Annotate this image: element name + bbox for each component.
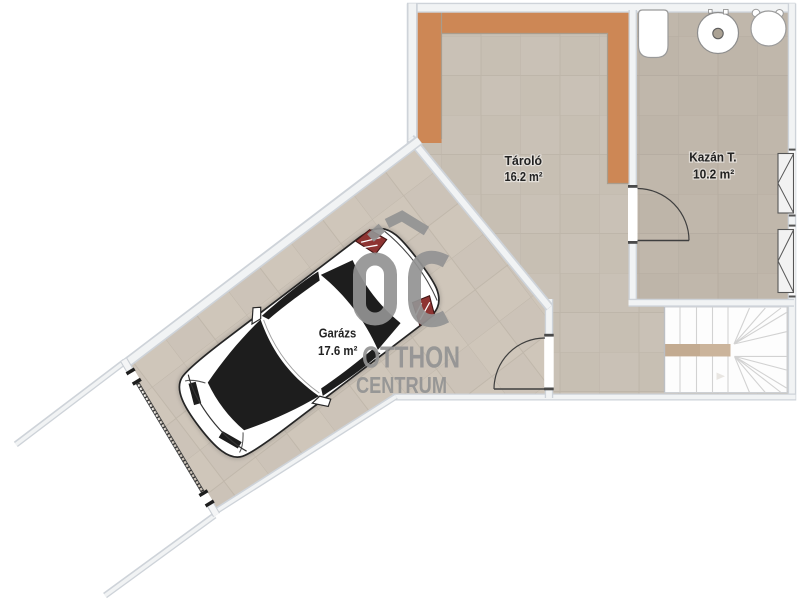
svg-text:CENTRUM: CENTRUM	[356, 372, 447, 398]
svg-text:10.2 m²: 10.2 m²	[693, 167, 734, 181]
svg-text:17.6 m²: 17.6 m²	[318, 344, 357, 358]
svg-text:OTTHON: OTTHON	[362, 340, 460, 375]
svg-text:Tároló: Tároló	[505, 154, 543, 168]
svg-text:Garázs: Garázs	[319, 327, 357, 341]
svg-text:Kazán T.: Kazán T.	[689, 151, 736, 165]
svg-text:16.2 m²: 16.2 m²	[505, 170, 543, 184]
